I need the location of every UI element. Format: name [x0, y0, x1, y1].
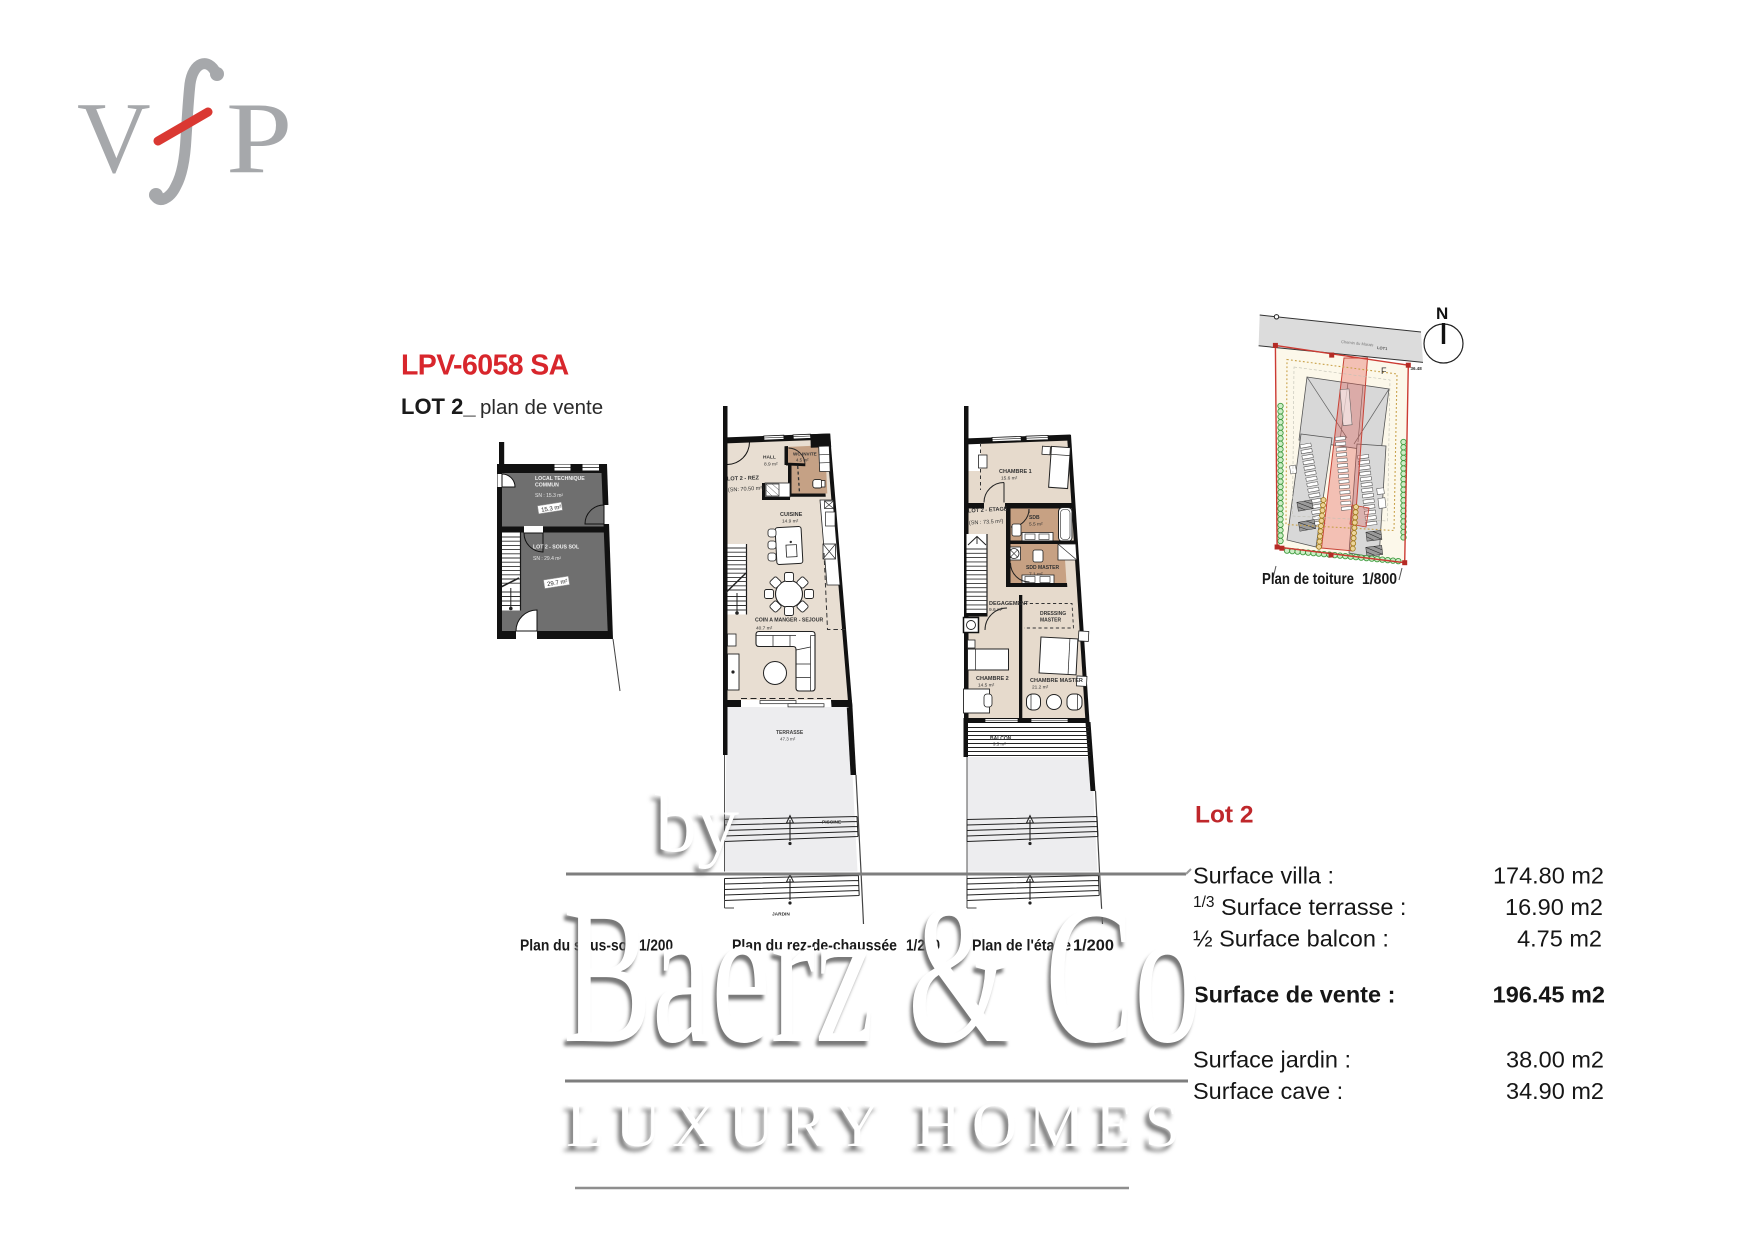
svg-text:Surface de vente :: Surface de vente :	[1193, 982, 1395, 1008]
svg-text:LOT 2 - SOUS SOL: LOT 2 - SOUS SOL	[533, 545, 580, 551]
svg-text:38.00 m2: 38.00 m2	[1506, 1047, 1604, 1073]
svg-text:LPV-6058 SA: LPV-6058 SA	[401, 350, 569, 382]
svg-text:LOT 2 - REZ: LOT 2 - REZ	[727, 475, 760, 482]
svg-text:COMMUN: COMMUN	[535, 483, 559, 489]
svg-text:CUISINE: CUISINE	[780, 512, 803, 518]
svg-text:15.6 m²: 15.6 m²	[1001, 476, 1018, 482]
svg-text:174.80 m2: 174.80 m2	[1493, 863, 1604, 889]
svg-text:V: V	[77, 82, 151, 195]
svg-text:CHAMBRE 1: CHAMBRE 1	[999, 469, 1032, 475]
svg-text:Plan de toiture: Plan de toiture	[1262, 571, 1354, 588]
svg-text:8.9 m²: 8.9 m²	[764, 462, 778, 468]
svg-text:Surface cave :: Surface cave :	[1193, 1078, 1343, 1104]
svg-text:14.5 m²: 14.5 m²	[978, 683, 995, 689]
svg-text:TERRASSE: TERRASSE	[776, 730, 804, 736]
svg-text:Surface jardin :: Surface jardin :	[1193, 1047, 1351, 1073]
svg-text:½ Surface balcon :: ½ Surface balcon :	[1193, 926, 1389, 952]
svg-text:LOT 2_: LOT 2_	[401, 394, 476, 419]
svg-text:5.5 m²: 5.5 m²	[1029, 522, 1043, 528]
svg-text:N: N	[1436, 304, 1448, 323]
svg-text:CHAMBRE MASTER: CHAMBRE MASTER	[1030, 678, 1083, 684]
svg-text:P: P	[226, 82, 292, 195]
svg-text:Lot 2: Lot 2	[1195, 802, 1254, 829]
svg-text:WC INVITE: WC INVITE	[793, 452, 817, 457]
svg-text:DRESSING: DRESSING	[1040, 611, 1066, 617]
svg-text:MASTER: MASTER	[1040, 618, 1062, 624]
svg-text:9.6 m²: 9.6 m²	[989, 607, 1003, 613]
svg-text:Surface villa :: Surface villa :	[1193, 863, 1334, 889]
svg-text:34.90 m2: 34.90 m2	[1506, 1078, 1604, 1104]
svg-text:21.2 m²: 21.2 m²	[1032, 685, 1049, 691]
svg-text:47.3 m²: 47.3 m²	[780, 737, 796, 742]
svg-text:F: F	[1381, 366, 1387, 376]
svg-text:SN : 29.4 m²: SN : 29.4 m²	[533, 556, 561, 562]
svg-text:HALL: HALL	[763, 455, 776, 461]
svg-text:7.1 m²: 7.1 m²	[1029, 572, 1043, 578]
svg-text:SN : 15.3 m²: SN : 15.3 m²	[535, 493, 563, 499]
svg-text:Surface terrasse :: Surface terrasse :	[1221, 894, 1406, 920]
svg-text:4.75 m2: 4.75 m2	[1517, 926, 1602, 952]
svg-text:14.9 m²: 14.9 m²	[782, 519, 799, 525]
svg-text:1/800: 1/800	[1362, 571, 1397, 588]
svg-text:DEGAGEMENT: DEGAGEMENT	[989, 601, 1029, 607]
svg-text:PISCINE: PISCINE	[822, 820, 842, 826]
svg-text:4.5 m²: 4.5 m²	[796, 458, 809, 463]
svg-text:196.45 m2: 196.45 m2	[1493, 982, 1605, 1008]
svg-text:COIN A MANGER - SEJOUR: COIN A MANGER - SEJOUR	[755, 618, 823, 624]
svg-text:9.5 m²: 9.5 m²	[993, 742, 1006, 747]
svg-text:LOCAL TECHNIQUE: LOCAL TECHNIQUE	[535, 476, 585, 482]
svg-text:plan de vente: plan de vente	[480, 396, 603, 419]
svg-text:40.7 m²: 40.7 m²	[756, 626, 773, 632]
svg-text:SDB: SDB	[1029, 515, 1040, 521]
svg-text:16.90 m2: 16.90 m2	[1505, 894, 1603, 920]
svg-text:SDD MASTER: SDD MASTER	[1026, 565, 1059, 571]
svg-text:CHAMBRE 2: CHAMBRE 2	[976, 676, 1009, 682]
svg-text:36.48: 36.48	[1411, 366, 1423, 371]
